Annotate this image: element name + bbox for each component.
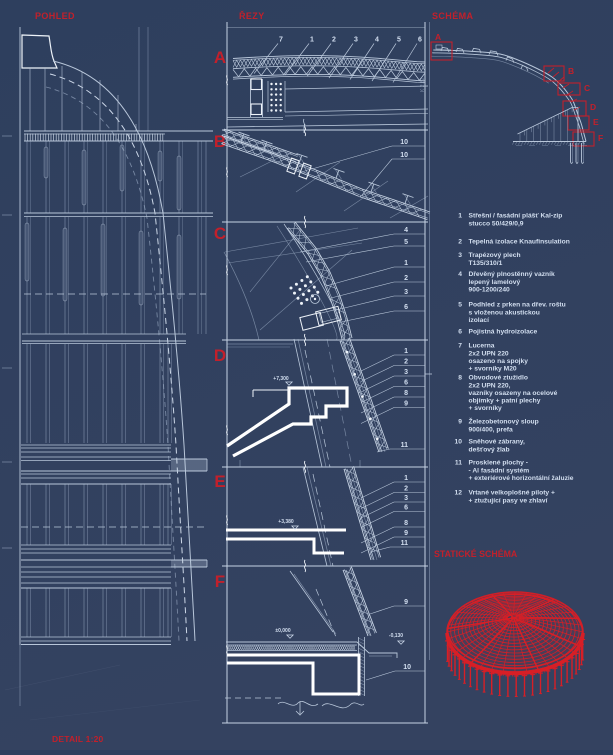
svg-text:4: 4 — [404, 227, 408, 234]
svg-text:8: 8 — [458, 375, 462, 382]
svg-text:A: A — [435, 32, 441, 42]
svg-text:1: 1 — [458, 213, 462, 220]
svg-text:- Al fasádní systém: - Al fasádní systém — [469, 467, 530, 474]
svg-text:dešťový žlab: dešťový žlab — [469, 446, 510, 453]
svg-text:6: 6 — [404, 505, 408, 512]
svg-text:B: B — [568, 66, 574, 76]
svg-text:4: 4 — [375, 37, 379, 44]
svg-text:objímky + patní plechy: objímky + patní plechy — [469, 398, 541, 405]
svg-text:Trapézový plech: Trapézový plech — [469, 252, 521, 259]
svg-text:6: 6 — [458, 329, 462, 336]
svg-text:+3,380: +3,380 — [278, 519, 294, 525]
svg-text:Dřevěný plnostěnný vazník: Dřevěný plnostěnný vazník — [469, 271, 556, 278]
svg-text:+ svorníky M20: + svorníky M20 — [469, 366, 517, 373]
svg-text:E: E — [214, 472, 225, 491]
svg-text:ŘEZY: ŘEZY — [239, 10, 265, 21]
svg-text:6: 6 — [404, 304, 408, 311]
svg-text:9: 9 — [404, 599, 408, 606]
svg-text:900-1200/240: 900-1200/240 — [469, 286, 511, 293]
svg-text:Prosklené plochy -: Prosklené plochy - — [469, 460, 528, 467]
svg-text:+ svorníky: + svorníky — [469, 405, 503, 412]
svg-text:K 2.82: K 2.82 — [420, 77, 426, 92]
svg-text:4: 4 — [458, 271, 462, 278]
svg-text:9: 9 — [458, 419, 462, 426]
svg-text:F: F — [215, 572, 225, 591]
svg-text:8: 8 — [404, 520, 408, 527]
svg-text:Sněhové zábrany,: Sněhové zábrany, — [469, 439, 526, 446]
svg-text:Pojistná hydroizolace: Pojistná hydroizolace — [469, 329, 538, 336]
svg-text:C: C — [584, 83, 590, 93]
svg-text:1: 1 — [404, 260, 408, 267]
svg-text:+ ztužující pasy ve zhlaví: + ztužující pasy ve zhlaví — [469, 497, 549, 504]
svg-text:8: 8 — [404, 390, 408, 397]
svg-text:C: C — [214, 224, 226, 243]
svg-text:F: F — [598, 133, 603, 143]
svg-text:10: 10 — [400, 152, 408, 159]
svg-text:5: 5 — [458, 302, 462, 309]
svg-text:Tepelná izolace Knaufinsulatio: Tepelná izolace Knaufinsulation — [469, 239, 570, 246]
svg-text:osazeno na spojky: osazeno na spojky — [469, 358, 529, 365]
svg-text:2x2 UPN 220,: 2x2 UPN 220, — [469, 382, 511, 389]
svg-text:10: 10 — [455, 439, 463, 446]
svg-text:9: 9 — [404, 401, 408, 408]
svg-text:6: 6 — [404, 380, 408, 387]
svg-text:5: 5 — [404, 239, 408, 246]
svg-text:T135/310/1: T135/310/1 — [469, 260, 503, 267]
svg-text:2x2 UPN 220: 2x2 UPN 220 — [469, 350, 509, 357]
svg-text:-0,130: -0,130 — [389, 633, 403, 639]
svg-text:10: 10 — [400, 139, 408, 146]
svg-text:3: 3 — [458, 252, 462, 259]
svg-text:Podhled z prken na dřev. roštu: Podhled z prken na dřev. roštu — [469, 302, 566, 309]
svg-text:6: 6 — [418, 37, 422, 44]
svg-text:5: 5 — [397, 37, 401, 44]
svg-text:DETAIL 1:20: DETAIL 1:20 — [52, 734, 104, 744]
svg-text:s vloženou akustickou: s vloženou akustickou — [469, 309, 540, 316]
svg-text:2: 2 — [458, 239, 462, 246]
svg-text:Železobetonový sloup: Železobetonový sloup — [469, 417, 539, 426]
svg-text:11: 11 — [455, 460, 462, 467]
svg-text:lepený lamelový: lepený lamelový — [469, 279, 521, 286]
svg-text:+7,300: +7,300 — [273, 376, 289, 382]
svg-text:11: 11 — [401, 540, 409, 547]
svg-text:7: 7 — [279, 37, 283, 44]
svg-text:Střešní / fasádní plášť Kal-zi: Střešní / fasádní plášť Kal-zip — [469, 213, 563, 220]
svg-text:D: D — [590, 102, 596, 112]
svg-text:D: D — [214, 346, 226, 365]
svg-text:12: 12 — [455, 490, 463, 497]
svg-text:3: 3 — [404, 495, 408, 502]
svg-text:3: 3 — [354, 37, 358, 44]
svg-text:STATICKÉ SCHÉMA: STATICKÉ SCHÉMA — [434, 549, 518, 559]
svg-text:stucco 50/429/0,9: stucco 50/429/0,9 — [469, 220, 524, 227]
svg-text:vazníky osazeny na ocelové: vazníky osazeny na ocelové — [469, 390, 558, 397]
svg-text:E: E — [593, 117, 599, 127]
svg-text:1: 1 — [404, 475, 408, 482]
svg-text:Obvodové ztužidlo: Obvodové ztužidlo — [469, 375, 528, 382]
svg-text:3: 3 — [404, 369, 408, 376]
svg-text:2: 2 — [404, 486, 408, 493]
svg-text:9: 9 — [404, 530, 408, 537]
svg-text:+ exteriérové horizontální žal: + exteriérové horizontální žaluzie — [469, 475, 574, 482]
svg-text:Vrtané velkoplošné piloty +: Vrtané velkoplošné piloty + — [469, 490, 556, 497]
svg-text:7: 7 — [458, 343, 462, 350]
svg-text:1: 1 — [310, 37, 314, 44]
svg-text:izolací: izolací — [469, 317, 491, 324]
svg-text:11: 11 — [401, 442, 409, 449]
svg-text:900/400, prefa: 900/400, prefa — [469, 426, 514, 433]
svg-text:3: 3 — [404, 289, 408, 296]
svg-text:±0,000: ±0,000 — [275, 628, 290, 634]
svg-text:POHLED: POHLED — [35, 11, 75, 21]
svg-text:SCHÉMA: SCHÉMA — [432, 11, 474, 21]
svg-text:10: 10 — [403, 664, 411, 671]
svg-text:A: A — [214, 48, 226, 67]
svg-text:2: 2 — [332, 37, 336, 44]
svg-text:Lucerna: Lucerna — [469, 343, 495, 350]
svg-text:1: 1 — [404, 348, 408, 355]
svg-text:2: 2 — [404, 275, 408, 282]
svg-text:2: 2 — [404, 359, 408, 366]
